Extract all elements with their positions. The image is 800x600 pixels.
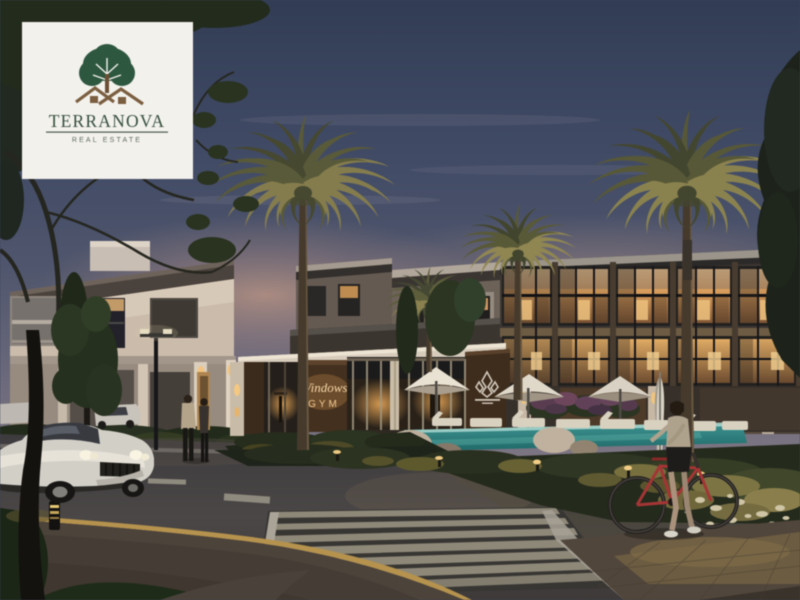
svg-text:GYM: GYM [308, 399, 340, 410]
svg-text:REAL ESTATE: REAL ESTATE [72, 137, 142, 144]
svg-text:TERRANOVA: TERRANOVA [49, 111, 165, 131]
